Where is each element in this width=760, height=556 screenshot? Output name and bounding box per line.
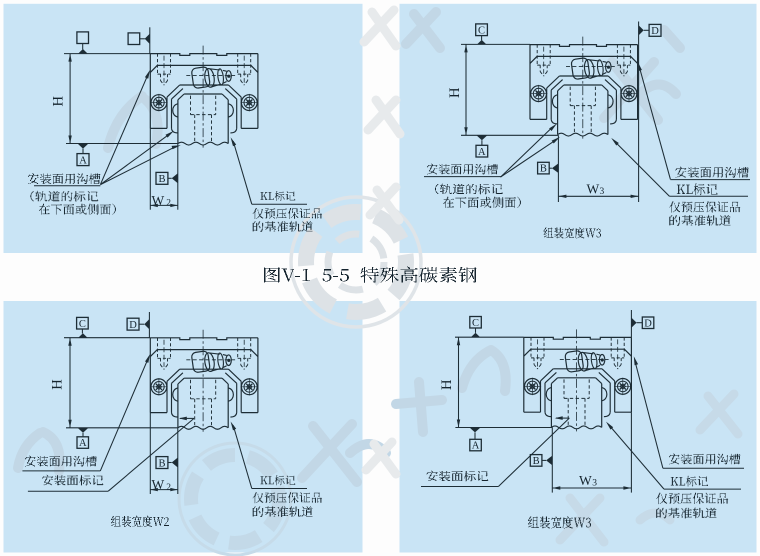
svg-text:C: C [478,25,485,36]
svg-text:H: H [50,379,66,390]
svg-text:B: B [533,456,540,467]
svg-text:A: A [79,155,87,166]
svg-text:W: W [152,193,165,208]
svg-text:A: A [79,438,87,449]
svg-text:2: 2 [166,199,171,209]
svg-text:W: W [152,477,165,492]
svg-text:A: A [478,147,486,158]
svg-text:D: D [651,26,659,37]
svg-text:2: 2 [166,483,171,493]
svg-text:C: C [79,319,86,330]
svg-text:A: A [472,441,480,452]
svg-text:W: W [579,473,592,488]
svg-text:C: C [472,318,479,329]
svg-text:B: B [158,458,165,469]
svg-text:H: H [439,379,455,390]
svg-text:D: D [644,318,652,329]
svg-text:3: 3 [592,479,597,489]
svg-text:D: D [129,320,137,331]
svg-text:3: 3 [600,187,605,197]
svg-text:B: B [540,164,547,175]
svg-text:H: H [447,87,463,98]
svg-text:W: W [587,181,600,196]
svg-text:B: B [158,174,165,185]
svg-text:H: H [51,96,67,107]
